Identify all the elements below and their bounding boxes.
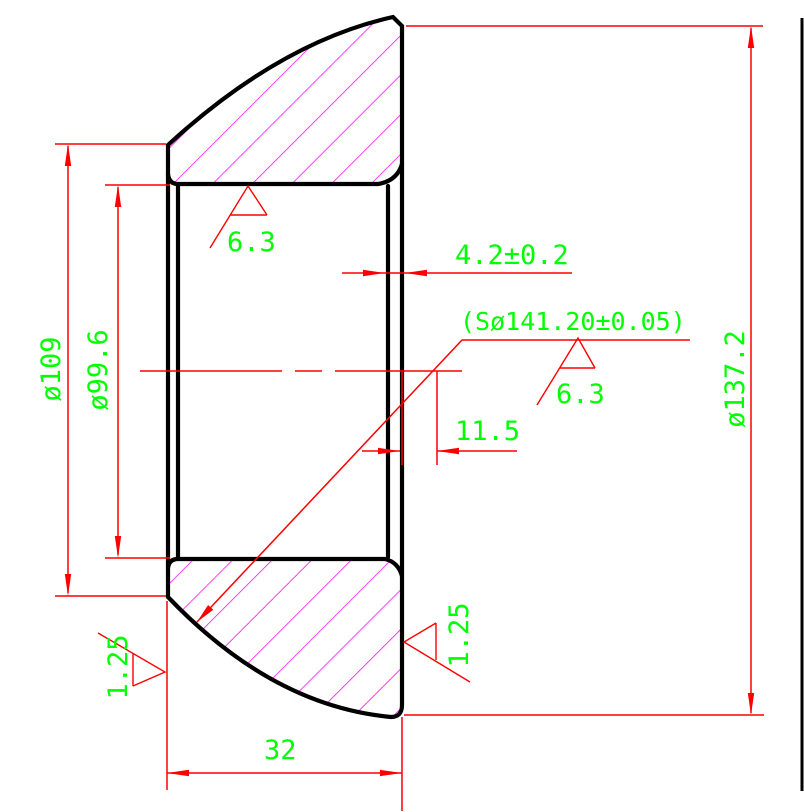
label-roughness-bore: 6.3	[227, 227, 276, 258]
arrow-down-icon	[115, 536, 121, 558]
section-hatch-top	[168, 17, 402, 184]
arrow-up-icon	[115, 185, 121, 207]
label-roughness-left-face: 1.25	[103, 634, 134, 699]
cad-drawing-canvas: 4.2±0.2 (Sø141.20±0.05) 11.5 6.3 6.3 32 …	[0, 0, 804, 812]
label-part-width: 32	[264, 735, 297, 766]
section-hatch-bottom	[168, 559, 402, 717]
label-roughness-right-face: 1.25	[444, 602, 475, 667]
arrow-right-icon	[363, 270, 385, 276]
arrow-right-icon	[380, 770, 402, 776]
label-wall-thickness: 4.2±0.2	[455, 240, 569, 271]
dimension-lines	[55, 26, 764, 811]
arrow-up-icon	[748, 26, 754, 48]
arrow-down-icon	[65, 574, 71, 596]
label-sphere-diameter: (Sø141.20±0.05)	[460, 307, 686, 336]
label-left-face-diameter: ø109	[36, 336, 67, 401]
label-sphere-center-offset: 11.5	[455, 416, 520, 447]
arrow-down-icon	[748, 693, 754, 715]
arrow-up-icon	[65, 144, 71, 166]
arrow-left-icon	[167, 770, 189, 776]
label-bore-diameter: ø99.6	[83, 329, 114, 410]
arrow-left-icon	[437, 448, 459, 454]
label-roughness-sphere: 6.3	[556, 379, 605, 410]
arrow-left-icon	[405, 270, 427, 276]
label-outer-face-diameter: ø137.2	[720, 330, 751, 428]
section-drawing: 4.2±0.2 (Sø141.20±0.05) 11.5 6.3 6.3 32 …	[0, 0, 804, 812]
